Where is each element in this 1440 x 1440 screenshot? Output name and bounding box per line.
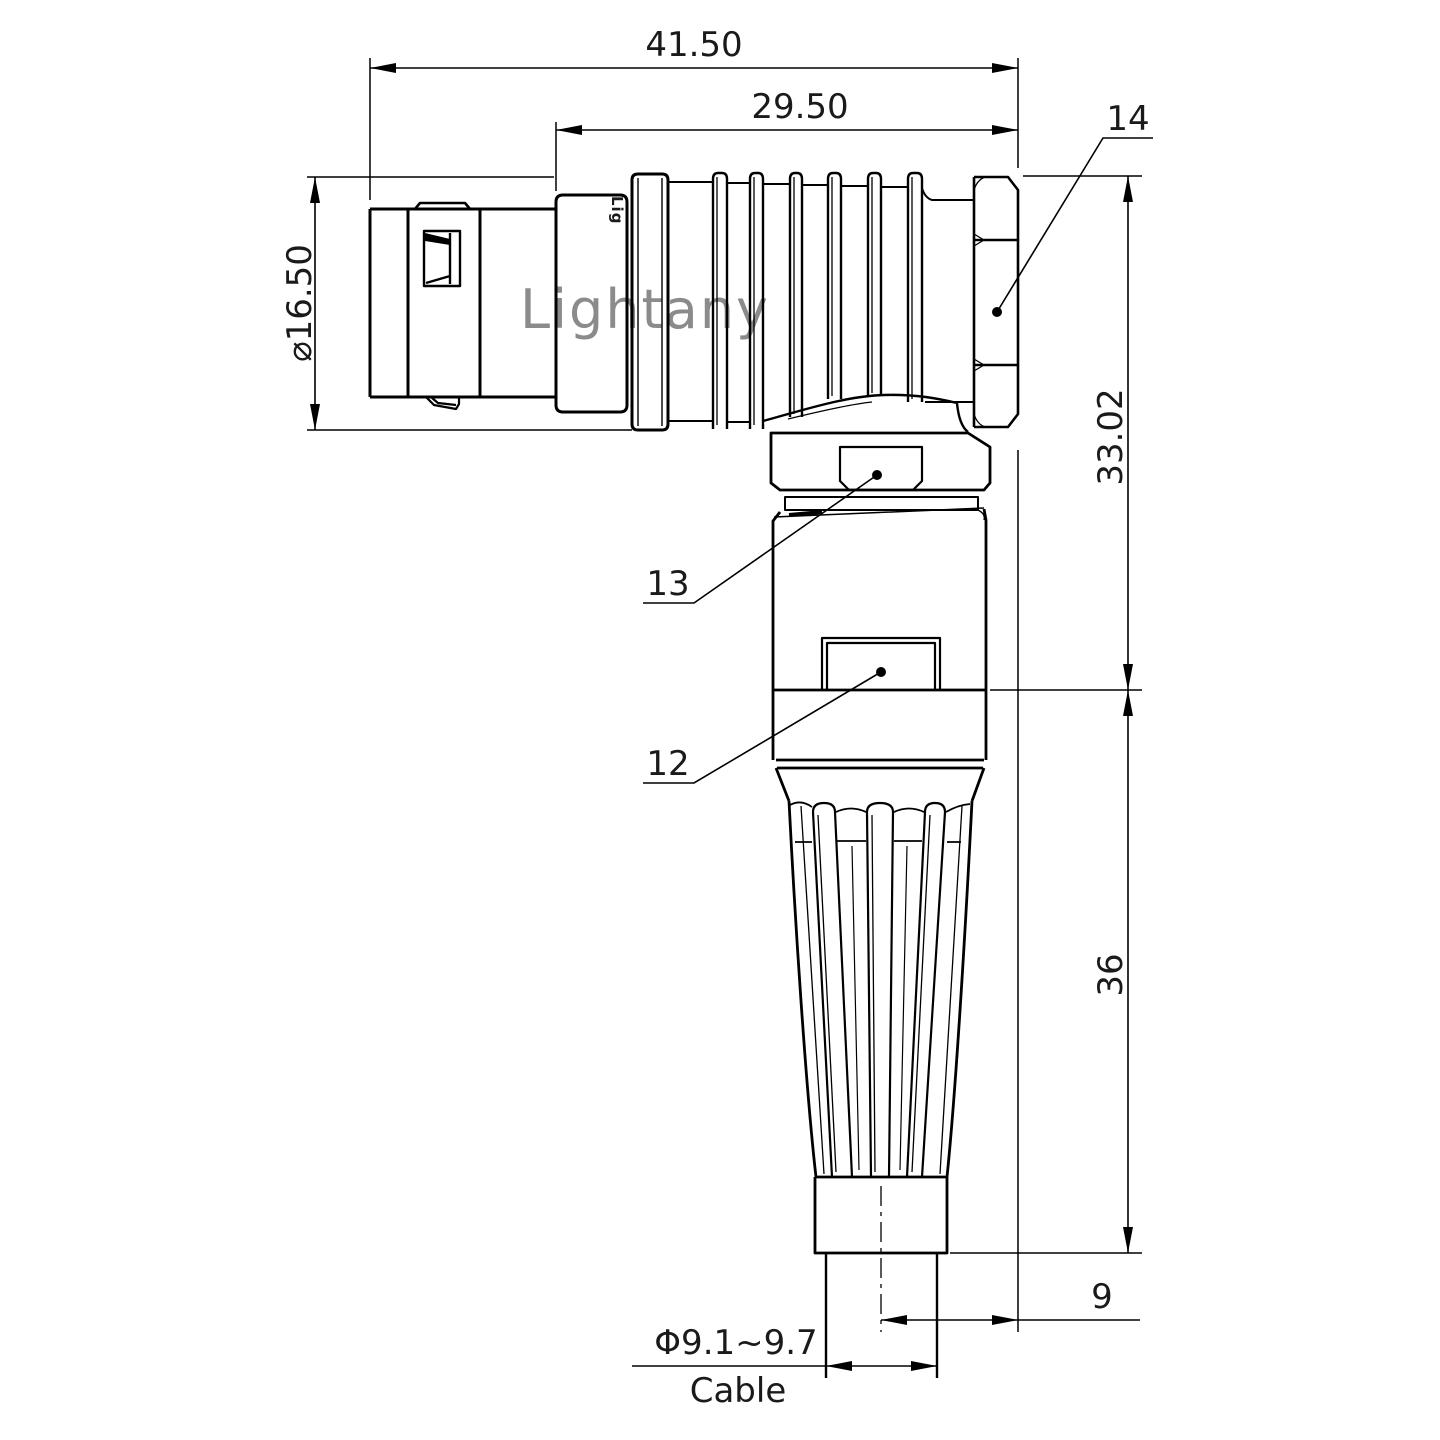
body-outline (773, 509, 986, 690)
body-shell (773, 509, 986, 801)
hex-backnut (974, 177, 1018, 427)
body-lower (773, 690, 986, 801)
dim-cable-offset: 9 (1091, 1277, 1113, 1317)
hex-outline (974, 177, 1018, 427)
technical-drawing: Lightany (0, 0, 1440, 1440)
cable-label: Cable (690, 1371, 787, 1411)
leader-dot-13 (872, 470, 882, 480)
nut-outline (771, 433, 990, 490)
head-bottom-tab (426, 397, 459, 409)
part-marking-text: Lig (608, 196, 626, 224)
dim-boot-length: 36 (1091, 953, 1131, 996)
part-label-13: 13 (646, 564, 689, 604)
strain-relief-boot (789, 801, 972, 1177)
boot-fin-inner-lines (801, 806, 962, 1174)
coupling-nut (771, 433, 990, 490)
hex-details (974, 177, 985, 427)
band-outline (785, 497, 978, 510)
leader-14 (997, 138, 1153, 312)
leader-dot-12 (876, 667, 886, 677)
cable-exit (815, 1177, 947, 1378)
boot-gap-lines (852, 846, 907, 1170)
elbow-lower-assembly (771, 433, 990, 1378)
dim-rear-length: 29.50 (751, 87, 848, 127)
dim-overall-length: 41.50 (645, 25, 742, 65)
part-label-14: 14 (1106, 99, 1149, 139)
head-keyway-shadow (425, 233, 450, 245)
body-window (822, 638, 940, 690)
dim-elbow-height: 33.02 (1091, 388, 1131, 485)
nut-window (840, 447, 922, 490)
dimension-arrowheads (310, 63, 1133, 1371)
drawing-canvas: Lightany (0, 0, 1440, 1440)
part-label-12: 12 (646, 744, 689, 784)
leader-lines (643, 138, 1153, 783)
thread-band (774, 497, 984, 520)
leader-dot-14 (992, 307, 1002, 317)
dim-front-diameter: ⌀16.50 (280, 244, 320, 362)
ribbed-grip-section (668, 173, 974, 432)
dim-cable-diameter: Φ9.1~9.7 (654, 1323, 817, 1363)
